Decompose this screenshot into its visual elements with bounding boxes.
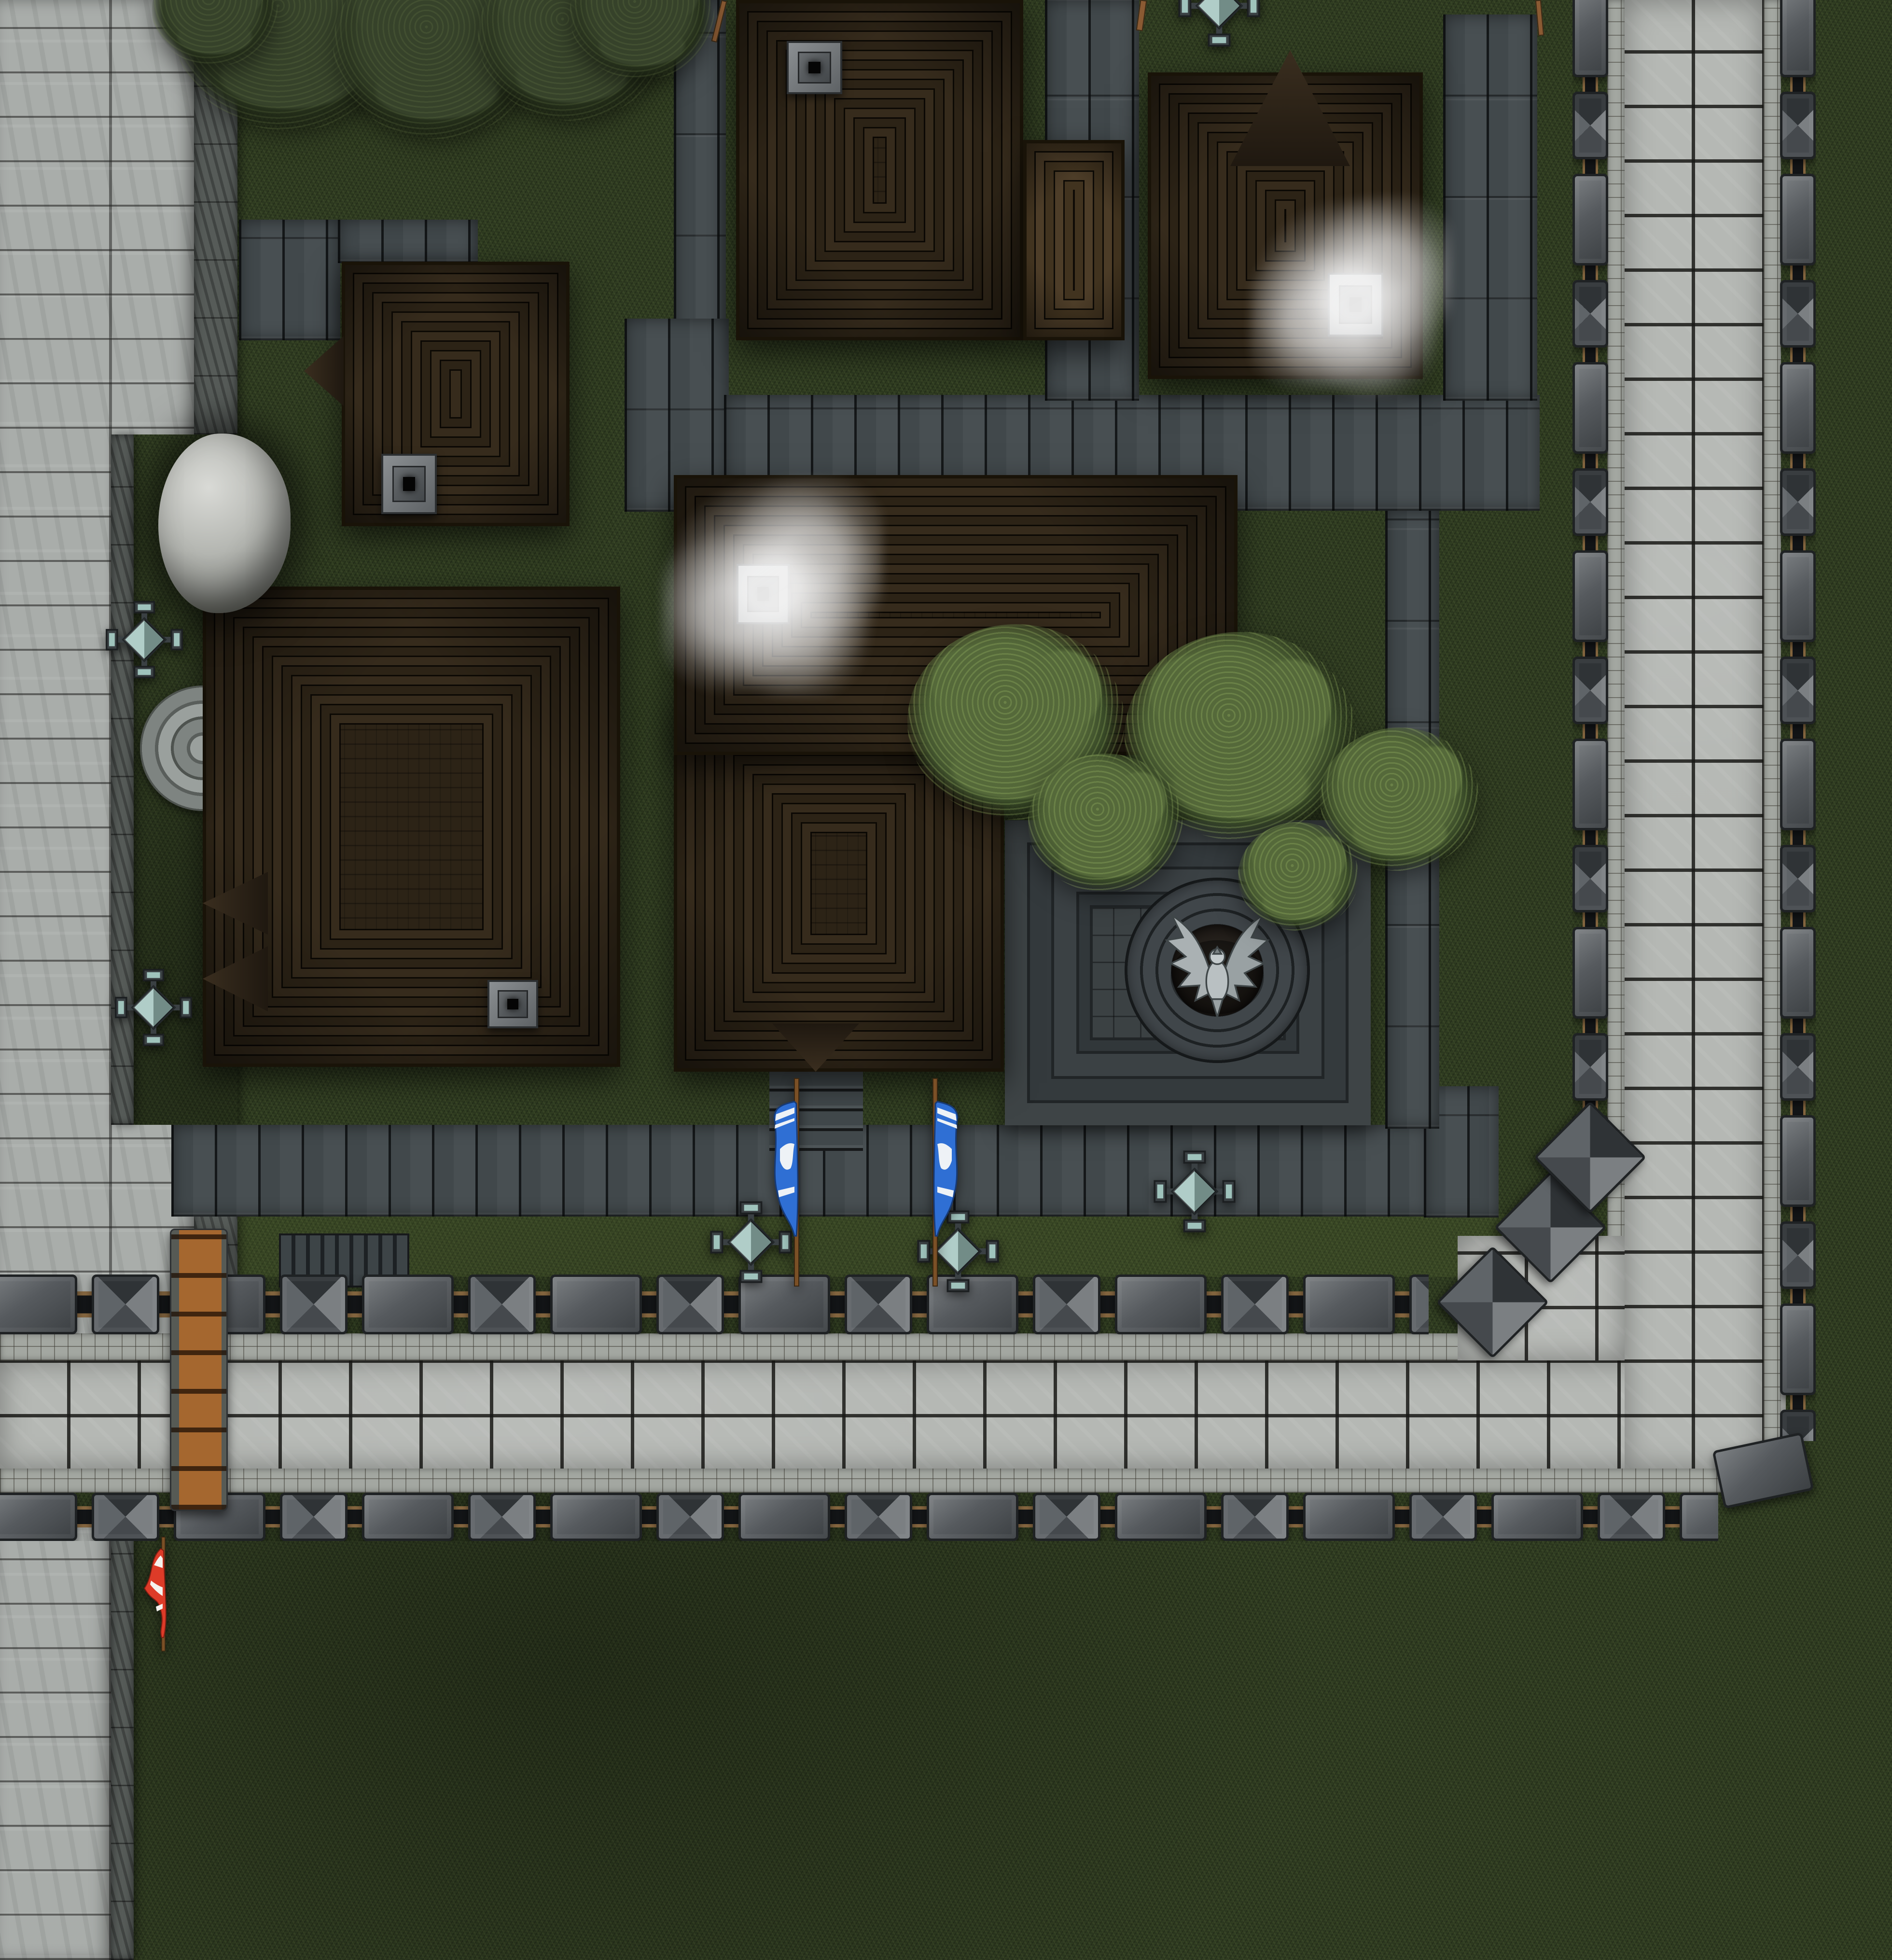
merlon-flat — [362, 1493, 454, 1541]
banner-blue-east — [899, 1077, 971, 1291]
merlon-pyramid — [1780, 1221, 1816, 1289]
statue-eagle — [1149, 902, 1286, 1039]
merlon-flat — [1780, 174, 1816, 266]
chimney-north — [787, 41, 842, 94]
merlon-flat — [1680, 1493, 1718, 1541]
lamp-yard-3 — [1151, 1148, 1238, 1235]
merlon-flat — [1303, 1274, 1395, 1334]
merlon-pyramid — [280, 1274, 348, 1334]
merlon-pyramid — [1780, 280, 1816, 348]
merlon-pyramid — [468, 1274, 536, 1334]
merlon-flat — [1780, 739, 1816, 830]
building-north-annex — [1023, 140, 1125, 340]
tree-oak-5 — [1238, 822, 1359, 931]
blue-banner-icon — [899, 1077, 971, 1291]
chimney-flue — [1349, 297, 1362, 312]
wall-south-walk — [0, 1360, 1786, 1469]
wall-east-walk — [1625, 0, 1764, 1469]
chimney-flue — [757, 587, 769, 601]
merlon-pyramid — [656, 1493, 724, 1541]
merlon-flat — [927, 1493, 1018, 1541]
merlon-flat — [1303, 1493, 1395, 1541]
wall-south-merlons-s — [0, 1493, 1718, 1541]
flag-red — [137, 1534, 190, 1665]
battle-map — [0, 0, 1892, 1960]
merlon-pyramid — [1409, 1274, 1429, 1334]
merlon-pyramid — [1780, 657, 1816, 724]
merlon-pyramid — [1572, 468, 1608, 536]
eagle-statue-icon — [1149, 902, 1286, 1039]
chimney-flue — [507, 999, 518, 1009]
merlon-pyramid — [1572, 92, 1608, 159]
merlon-pyramid — [1221, 1274, 1289, 1334]
street-lamp-icon — [103, 599, 185, 681]
merlon-flat — [1572, 927, 1608, 1019]
lamp-north-partial — [1176, 0, 1263, 49]
merlon-pyramid — [1780, 845, 1816, 912]
merlon-pyramid — [1221, 1493, 1289, 1541]
merlon-pyramid — [1572, 1033, 1608, 1101]
path-topleft — [239, 220, 340, 340]
merlon-pyramid — [1033, 1274, 1100, 1334]
road-west-lower-border — [111, 1521, 134, 1960]
merlon-flat — [362, 1274, 454, 1334]
merlon-pyramid — [1572, 657, 1608, 724]
merlon-flat — [1572, 362, 1608, 454]
chimney-flue — [403, 477, 416, 490]
merlon-pyramid — [1409, 1493, 1477, 1541]
red-flag-icon — [137, 1534, 190, 1665]
merlon-flat — [1572, 0, 1608, 77]
banner-blue-west — [761, 1077, 833, 1291]
lamp-west-2 — [112, 966, 195, 1049]
wall-east-band-e — [1764, 0, 1781, 1469]
building-west-small — [342, 262, 570, 526]
chimney-southwest — [487, 980, 538, 1028]
merlon-flat — [1115, 1493, 1207, 1541]
merlon-pyramid — [1572, 280, 1608, 348]
lamp-west-1 — [103, 599, 185, 681]
wall-south-band-s — [0, 1469, 1786, 1493]
merlon-pyramid — [280, 1493, 348, 1541]
chimney-west-small — [381, 454, 437, 514]
path-b2-east — [1443, 14, 1537, 401]
merlon-flat — [1780, 1115, 1816, 1207]
building-north — [736, 0, 1023, 340]
merlon-flat — [1780, 362, 1816, 454]
street-lamp-icon — [1151, 1148, 1238, 1235]
street-lamp-icon — [112, 966, 195, 1049]
merlon-pyramid — [1033, 1493, 1100, 1541]
merlon-flat — [1115, 1274, 1207, 1334]
merlon-pyramid — [1598, 1493, 1665, 1541]
road-west-lower — [0, 1521, 111, 1960]
chimney-central — [737, 564, 790, 624]
blue-banner-icon — [761, 1077, 833, 1291]
merlon-pyramid — [1572, 845, 1608, 912]
wall-east-merlons-e — [1780, 0, 1816, 1441]
merlon-flat — [0, 1274, 77, 1334]
merlon-pyramid — [92, 1274, 159, 1334]
path-topleft-ext — [338, 220, 478, 263]
merlon-flat — [1572, 739, 1608, 830]
merlon-flat — [1780, 550, 1816, 642]
merlon-pyramid — [92, 1493, 159, 1541]
chimney-flue — [808, 62, 821, 74]
merlon-flat — [550, 1493, 642, 1541]
merlon-pyramid — [1780, 468, 1816, 536]
merlon-flat — [550, 1274, 642, 1334]
chimney-northeast — [1328, 273, 1383, 336]
merlon-pyramid — [468, 1493, 536, 1541]
wall-east-merlons-w — [1572, 0, 1608, 1159]
merlon-pyramid — [1780, 1033, 1816, 1101]
street-lamp-icon — [1176, 0, 1263, 49]
merlon-flat — [0, 1493, 77, 1541]
merlon-flat — [1572, 174, 1608, 266]
tree-oak-3 — [1028, 754, 1182, 893]
merlon-flat — [1491, 1493, 1583, 1541]
merlon-flat — [1780, 1303, 1816, 1395]
ladder-siege — [170, 1229, 228, 1511]
merlon-pyramid — [845, 1493, 912, 1541]
merlon-flat — [1780, 927, 1816, 1019]
merlon-flat — [738, 1493, 830, 1541]
merlon-pyramid — [1780, 92, 1816, 159]
merlon-flat — [1780, 0, 1816, 77]
merlon-flat — [1572, 550, 1608, 642]
